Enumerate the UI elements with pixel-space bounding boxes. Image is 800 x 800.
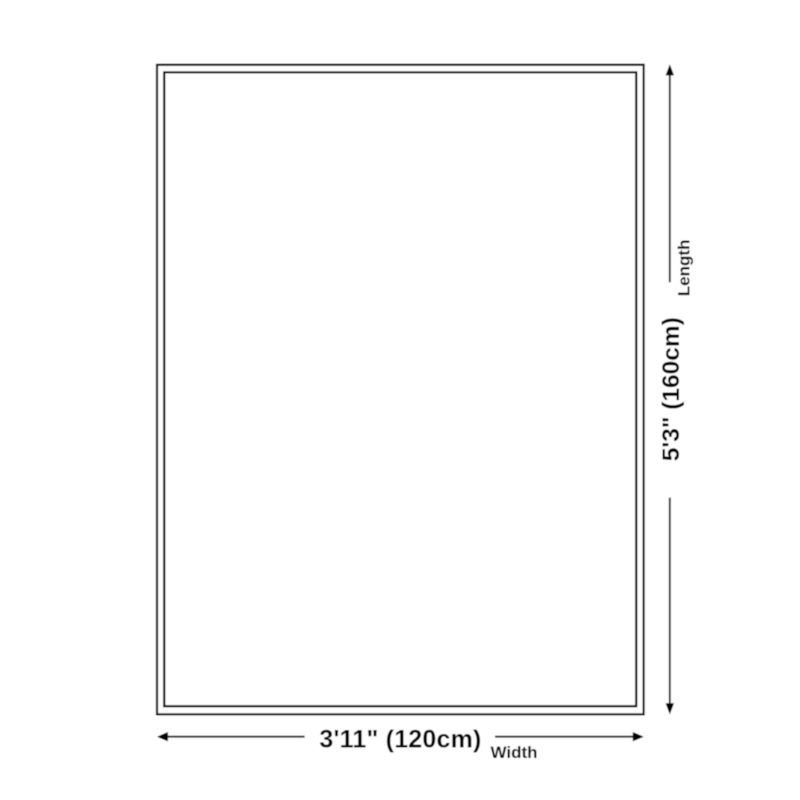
- svg-text:Width: Width: [491, 743, 538, 762]
- svg-text:5'3" (160cm): 5'3" (160cm): [658, 317, 685, 461]
- svg-text:Length: Length: [675, 240, 694, 297]
- svg-text:3'11" (120cm): 3'11" (120cm): [319, 725, 481, 753]
